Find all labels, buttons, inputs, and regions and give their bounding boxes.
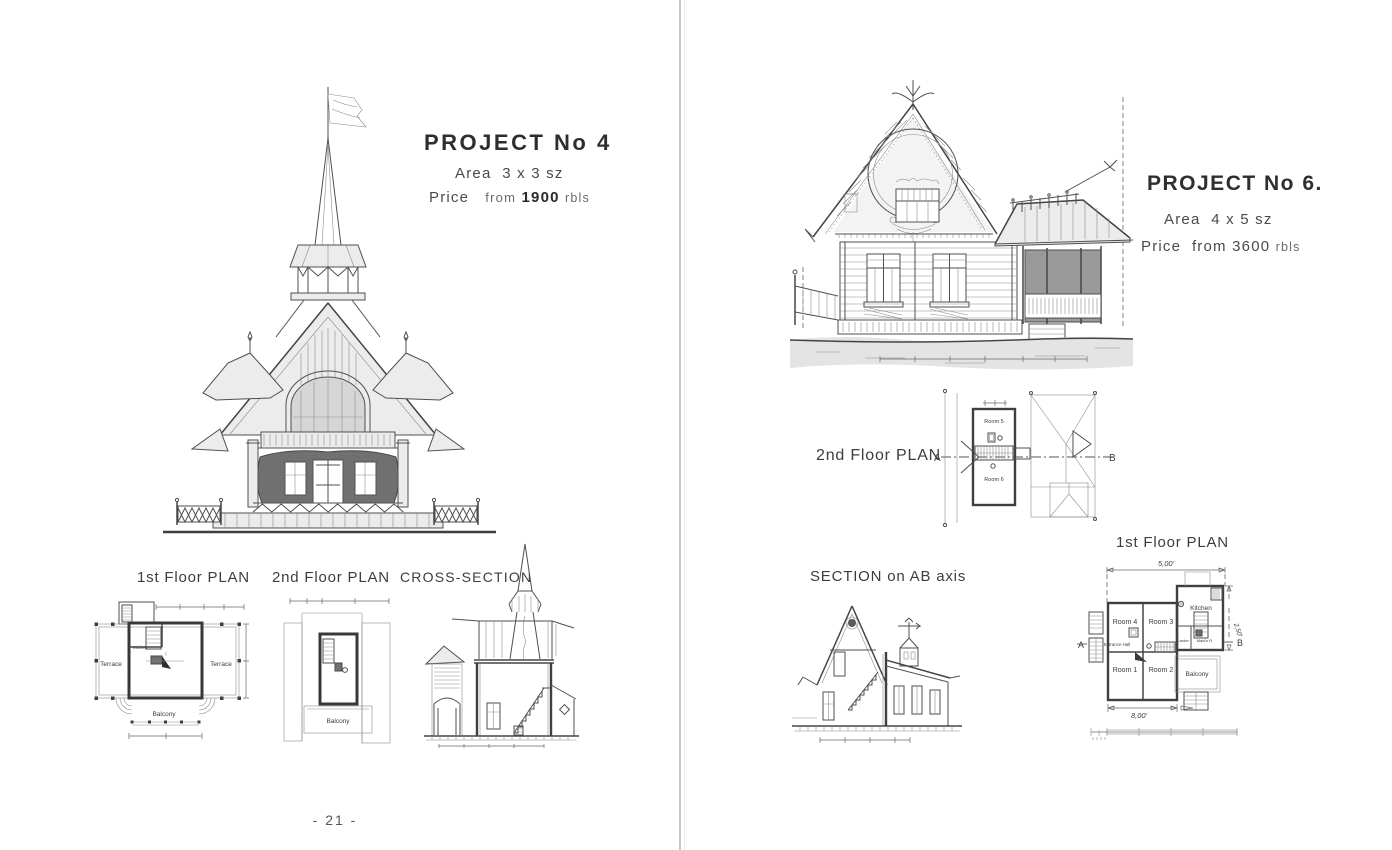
- label-balcony-2f: Balcony: [326, 718, 350, 725]
- scale-bar: [1091, 728, 1237, 740]
- label-room6: Room 6: [984, 477, 1004, 483]
- label-room2: Room 2: [1149, 667, 1174, 674]
- project-6-price-unit: rbls: [1276, 240, 1301, 254]
- main-walls: [1108, 572, 1223, 700]
- project-6-title: PROJECT No 6.: [1147, 172, 1323, 196]
- top-dimension-line: [156, 604, 244, 610]
- project-6-elevation-drawing: [785, 72, 1135, 377]
- eave-fringe: [835, 234, 993, 238]
- label-room1: Room 1: [1113, 667, 1138, 674]
- label-entrance-hall: Entrance Hall: [1104, 642, 1130, 647]
- label-kitchen: Kitchen: [133, 645, 148, 650]
- entry-stairs: [1089, 612, 1103, 662]
- balcony-band: [261, 432, 395, 448]
- project-6-second-floor-plan: A B Room 5 Room 6: [933, 387, 1118, 535]
- right-wing: [886, 660, 960, 726]
- core-walls: [129, 623, 202, 698]
- section-interior: [830, 650, 886, 726]
- project-4-cross-section-drawing: [424, 536, 576, 748]
- project-4-price-unit: rbls: [565, 191, 590, 205]
- project-6-price-line: Price from 3600 rbls: [1141, 238, 1301, 255]
- left-porch-tower: [426, 646, 464, 736]
- project-6-section-drawing: [790, 592, 968, 744]
- ground-floor-body: [246, 440, 410, 507]
- roof-plan: [1030, 392, 1097, 521]
- caption-no6-first-floor: 1st Floor PLAN: [1116, 534, 1229, 551]
- project-6-price-label: Price: [1141, 238, 1181, 255]
- project-6-price-value: 3600: [1232, 238, 1270, 255]
- label-room3: Room 3: [1149, 619, 1174, 626]
- label-maids-room: Maid's R.: [1197, 638, 1214, 643]
- page-spine-shadow: [684, 0, 685, 850]
- caption-no4-first-floor: 1st Floor PLAN: [137, 569, 250, 586]
- project-4-second-floor-plan: Balcony: [272, 586, 394, 752]
- entry-steps: [119, 602, 154, 624]
- top-dimension: 5,00': [1107, 559, 1225, 602]
- label-terrace-right: Terrace: [210, 661, 232, 668]
- top-dimension-line: [290, 598, 389, 604]
- project-6-first-floor-plan: 5,00' Room 4 Room 3 Kitchen Entrance Hal…: [1077, 556, 1269, 754]
- ground: [424, 736, 579, 748]
- axis-label-a-1f: A: [1078, 640, 1084, 650]
- project-6-area-label: Area: [1164, 211, 1201, 228]
- ground: [792, 718, 962, 743]
- label-kitchen-no6: Kitchen: [1190, 605, 1212, 612]
- section-gable: [798, 606, 887, 685]
- dim-bottom-label: 8,00': [1131, 711, 1148, 720]
- right-annex: [551, 685, 576, 736]
- balcony-block: [1175, 656, 1220, 710]
- project-4-price-value: 1900: [521, 189, 559, 206]
- section-spire: [509, 544, 541, 659]
- label-balcony-no6: Balcony: [1185, 671, 1209, 678]
- caption-no6-section: SECTION on AB axis: [810, 568, 966, 585]
- section-body: [477, 663, 551, 736]
- label-room5: Room 5: [984, 419, 1004, 425]
- axis-label-b: B: [1109, 453, 1116, 464]
- flag-icon: [328, 87, 366, 140]
- left-stair-rail: [793, 270, 838, 325]
- project-4-area-value: 3 x 3 sz: [502, 165, 563, 182]
- spire: [290, 138, 366, 300]
- project-6-price-from: from: [1192, 238, 1227, 255]
- left-wall-window: [823, 692, 834, 720]
- project-6-area-value: 4 x 5 sz: [1211, 211, 1272, 228]
- interior-fittings: [1129, 628, 1175, 662]
- turret: [898, 618, 920, 666]
- axis-label-b-1f: B: [1237, 638, 1243, 648]
- dim-right-label: 2,50': [1232, 622, 1243, 639]
- label-terrace-left: Terrace: [100, 661, 122, 668]
- page-number: - 21 -: [300, 812, 370, 828]
- caption-no6-second-floor: 2nd Floor PLAN: [816, 447, 941, 465]
- base-skirt: [838, 320, 1022, 334]
- axis-label-a: A: [934, 453, 941, 464]
- caption-no4-second-floor: 2nd Floor PLAN: [272, 569, 390, 586]
- project-4-first-floor-plan: Terrace Kitchen Terrace Balcony: [84, 594, 256, 746]
- dim-top-label: 5,00': [1158, 559, 1175, 568]
- room-walls: [320, 634, 357, 704]
- project-6-area-line: Area 4 x 5 sz: [1164, 211, 1273, 228]
- project-4-elevation-drawing: [158, 85, 503, 535]
- main-roof: [192, 300, 464, 451]
- label-larder: Larder: [1177, 638, 1189, 643]
- page-spine-divider: [679, 0, 681, 850]
- label-room4: Room 4: [1113, 619, 1138, 626]
- label-balcony-1f: Balcony: [152, 711, 176, 718]
- room-block: [973, 400, 1030, 505]
- ground: [790, 337, 1133, 370]
